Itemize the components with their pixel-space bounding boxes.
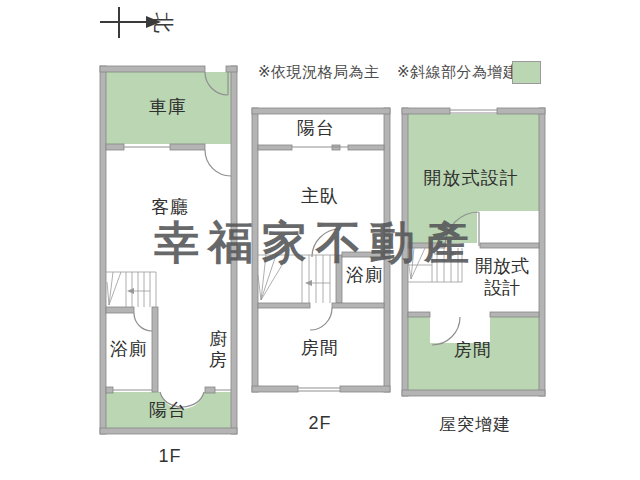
compass-north-icon: 北 (100, 7, 175, 38)
floor-label-1f: 1F (158, 446, 181, 467)
floor-label-roof: 屋突增建 (439, 413, 511, 436)
roof-windows (450, 110, 497, 113)
note-addition: ※斜線部分為增建 (397, 63, 519, 82)
room-label-balcony-2f: 陽台 (297, 118, 335, 139)
roof-upper-door-swing (477, 211, 539, 243)
room-label-open-design-upper: 開放式設計 (424, 168, 519, 189)
room-label-bathroom-1f: 浴廁 (110, 339, 148, 360)
1f-stairs (106, 272, 156, 307)
room-label-open-design-lower: 開放式設計 (472, 255, 532, 299)
room-label-garage: 車庫 (149, 97, 187, 118)
agency-watermark: 幸福家不動產 (154, 213, 478, 273)
floor-label-2f: 2F (308, 413, 331, 434)
note-current-layout: ※依現況格局為主 (258, 63, 380, 82)
room-label-balcony-1f: 陽台 (149, 400, 187, 421)
room-label-room-2f: 房間 (301, 338, 339, 359)
addition-legend-swatch (512, 61, 541, 84)
room-label-master-bedroom: 主臥 (301, 186, 339, 207)
room-label-kitchen: 廚房 (208, 329, 228, 371)
floor-plan-page: 北 (0, 0, 640, 480)
room-label-room-roof: 房間 (454, 340, 492, 361)
compass-north-label: 北 (152, 12, 175, 33)
